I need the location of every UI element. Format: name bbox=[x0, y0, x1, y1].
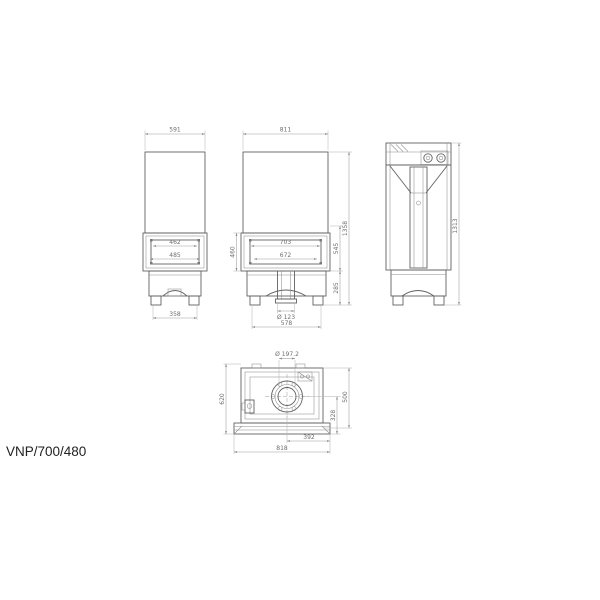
outlet-box bbox=[421, 151, 448, 165]
dim-side-glass-width: 462 bbox=[169, 239, 181, 246]
back-foot-left bbox=[393, 296, 403, 305]
front-foot-right bbox=[313, 296, 323, 305]
side-upper-body bbox=[145, 152, 205, 233]
technical-drawing: 591 462 485 358 811 bbox=[0, 0, 600, 600]
dim-front-glass-width: 672 bbox=[280, 252, 292, 259]
view-side-right: 1313 bbox=[386, 143, 462, 305]
dim-side-depth-top: 591 bbox=[169, 127, 181, 134]
view-front: 811 703 672 460 Ø 12 bbox=[230, 127, 353, 330]
dim-flue-diameter: Ø 197.2 bbox=[275, 351, 299, 358]
side-bracket bbox=[245, 400, 254, 413]
dim-side-glass-opening-width: 485 bbox=[169, 252, 181, 259]
dim-side-base-feet-span: 358 bbox=[169, 311, 181, 318]
back-base bbox=[391, 270, 446, 296]
dim-front-base-height: 285 bbox=[333, 282, 340, 294]
dim-top-depth-body: 500 bbox=[342, 391, 349, 403]
dim-top-width-total: 818 bbox=[276, 445, 288, 452]
view-side-left: 591 462 485 358 bbox=[143, 127, 207, 321]
dim-flue-center-to-side: 392 bbox=[303, 434, 315, 441]
convection-outlet-right bbox=[437, 154, 445, 162]
dim-front-width-top: 811 bbox=[280, 127, 292, 134]
model-label: VNP/700/480 bbox=[6, 444, 86, 459]
dim-front-base-width: 578 bbox=[281, 320, 293, 327]
dim-front-door-section-height: 545 bbox=[333, 243, 340, 255]
side-foot-right bbox=[189, 296, 199, 305]
dim-front-total-height: 1358 bbox=[342, 221, 349, 236]
dim-front-glass-height: 460 bbox=[230, 246, 237, 258]
dim-top-depth-total: 620 bbox=[219, 393, 226, 405]
convection-outlet-left bbox=[424, 154, 432, 162]
side-foot-left bbox=[151, 296, 161, 305]
side-base-arch bbox=[163, 291, 187, 297]
front-upper-body bbox=[243, 152, 328, 233]
top-body-outer bbox=[241, 368, 323, 423]
dim-flue-center-to-front: 328 bbox=[330, 410, 337, 422]
front-foot-left bbox=[250, 296, 260, 305]
technical-drawing-page: 591 462 485 358 811 bbox=[0, 0, 600, 600]
guillotine-channel bbox=[410, 167, 427, 268]
dim-back-body-height: 1313 bbox=[452, 218, 459, 233]
air-inlet-flange bbox=[276, 299, 297, 303]
view-top: Ø 197.2 620 500 328 392 818 bbox=[219, 351, 352, 454]
top-front-frame bbox=[234, 423, 330, 434]
back-base-arch bbox=[402, 291, 434, 297]
top-body-inner bbox=[245, 372, 319, 419]
back-foot-right bbox=[434, 296, 444, 305]
dim-front-opening-width: 703 bbox=[280, 239, 292, 246]
front-base-arch bbox=[266, 290, 306, 296]
